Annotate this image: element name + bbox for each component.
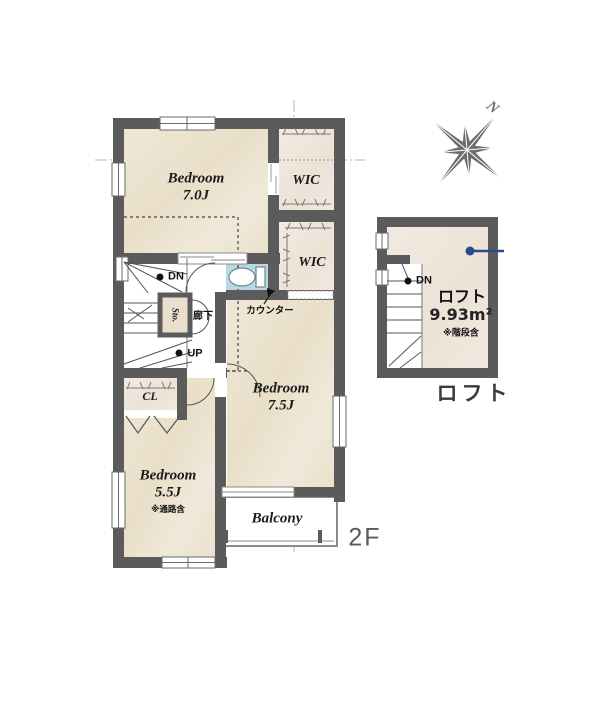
toilet-icon [229, 267, 265, 287]
stairs-dn-dot [157, 274, 164, 281]
stairs-up-label: UP [187, 349, 202, 360]
wic-top-label: WIC [292, 174, 319, 188]
counter-label: カウンター [246, 306, 294, 316]
bedroom2-name: Bedroom [253, 382, 310, 397]
window [333, 396, 346, 447]
loft-caption: ロフト [437, 384, 512, 405]
bedroom3-size: 5.5J [155, 486, 181, 501]
bedroom3-note: ※通路含 [151, 506, 185, 515]
wic-top-room [279, 129, 334, 210]
toilet-door-arc [186, 263, 215, 292]
balcony-post [318, 530, 322, 543]
stairs-dn-label: DN [168, 272, 184, 283]
window [116, 257, 128, 281]
stairs-up-dot [176, 350, 183, 357]
loft-dn-label: DN [416, 276, 432, 287]
bedroom1-name: Bedroom [168, 172, 225, 187]
window [160, 117, 215, 130]
bedroom3-name: Bedroom [140, 469, 197, 484]
closet-label: CL [142, 390, 157, 402]
balcony-label: Balcony [252, 512, 303, 527]
window [112, 472, 125, 528]
loft-dn-dot [405, 278, 412, 285]
window [112, 163, 125, 196]
bedroom2-size: 7.5J [268, 399, 294, 414]
window [162, 557, 215, 568]
wic-bottom-label: WIC [298, 256, 325, 270]
floor-label: 2F [348, 526, 381, 551]
loft-title: ロフト [438, 289, 486, 305]
hallway-label: 廊下 [193, 312, 213, 322]
floor-plan-page: Bedroom 7.0J WIC WIC Bedroom 7.5J Bedroo… [0, 0, 601, 710]
loft-area: 9.93m² [429, 307, 492, 323]
loft-note: ※階段含 [443, 330, 479, 339]
storage-label: Sto. [171, 308, 180, 322]
compass-icon [402, 85, 532, 215]
bedroom1-size: 7.0J [183, 189, 209, 204]
floor-plan-drawing [0, 0, 601, 710]
